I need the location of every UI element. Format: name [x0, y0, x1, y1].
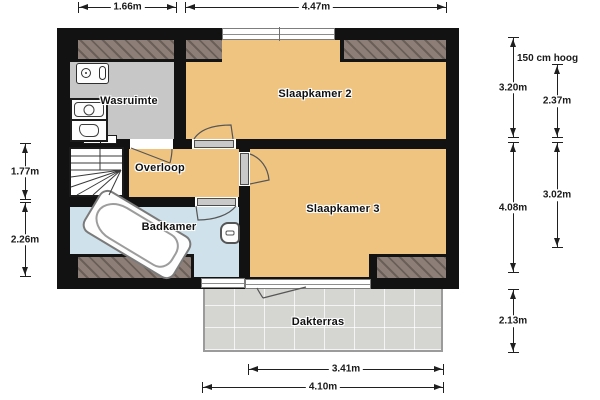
- boiler-icon: [76, 63, 109, 84]
- dimension-bottom-1: 3.41m: [248, 364, 444, 375]
- dimension-label: 2.13m: [497, 315, 529, 327]
- floor-plan: Wasruimte Slaapkamer 2 Overloop Badkamer…: [0, 0, 600, 400]
- window-badkamer: [201, 278, 245, 288]
- dimension-bottom-2: 4.10m: [202, 382, 444, 393]
- dimension-top-1: 1.66m: [78, 2, 177, 13]
- dimension-label: 4.47m: [299, 1, 333, 13]
- dimension-label: 3.41m: [329, 363, 363, 375]
- dimension-label: 3.20m: [497, 82, 529, 94]
- sloped-zone-bottom-right: [377, 254, 446, 278]
- height-note: 150 cm hoog: [517, 53, 578, 64]
- dimension-label: 1.77m: [9, 166, 41, 178]
- dimension-left-1: 1.77m: [20, 143, 31, 200]
- dimension-right-4: 3.02m: [552, 142, 563, 248]
- doorway-wasruimte: [130, 139, 173, 149]
- room-label-slaapkamer-3: Slaapkamer 3: [306, 203, 379, 215]
- wall-stub-topleft: [70, 40, 78, 62]
- dimension-right-3: 4.08m: [508, 142, 519, 273]
- dimension-label: 2.26m: [9, 234, 41, 246]
- dimension-right-2: 2.37m: [552, 64, 563, 138]
- window-slaapkamer2: [222, 28, 335, 40]
- sloped-zone-top-right: [340, 40, 446, 62]
- sloped-zone-top-left: [78, 40, 174, 62]
- room-label-overloop: Overloop: [135, 162, 185, 174]
- dimension-label: 4.10m: [306, 381, 340, 393]
- toilet-icon: [220, 222, 240, 244]
- wall-outer-right: [446, 28, 459, 289]
- dimension-label: 2.37m: [541, 95, 573, 107]
- dimension-top-2: 4.47m: [185, 2, 447, 13]
- dimension-right-1: 3.20m: [508, 37, 519, 138]
- window-door-dakterras: [245, 279, 371, 289]
- door-leaf-slaapkamer3: [240, 153, 249, 185]
- wall-stub-bottomleft: [70, 254, 78, 278]
- door-leaf-badkamer: [197, 198, 236, 206]
- dimension-label: 1.66m: [110, 1, 144, 13]
- dryer-icon: [70, 119, 108, 142]
- room-label-dakterras: Dakterras: [292, 316, 345, 328]
- wall-wasruimte-slaapkamer2: [174, 40, 186, 149]
- dimension-right-5: 2.13m: [508, 289, 519, 353]
- stairs-icon: [69, 147, 124, 197]
- room-label-slaapkamer-2: Slaapkamer 2: [278, 88, 351, 100]
- dimension-left-2: 2.26m: [20, 202, 31, 277]
- dimension-label: 4.08m: [497, 202, 529, 214]
- room-label-wasruimte: Wasruimte: [100, 95, 158, 107]
- room-label-badkamer: Badkamer: [142, 221, 197, 233]
- sloped-zone-top-mid: [186, 40, 222, 62]
- dimension-label: 3.02m: [541, 189, 573, 201]
- door-leaf-slaapkamer2: [194, 140, 234, 148]
